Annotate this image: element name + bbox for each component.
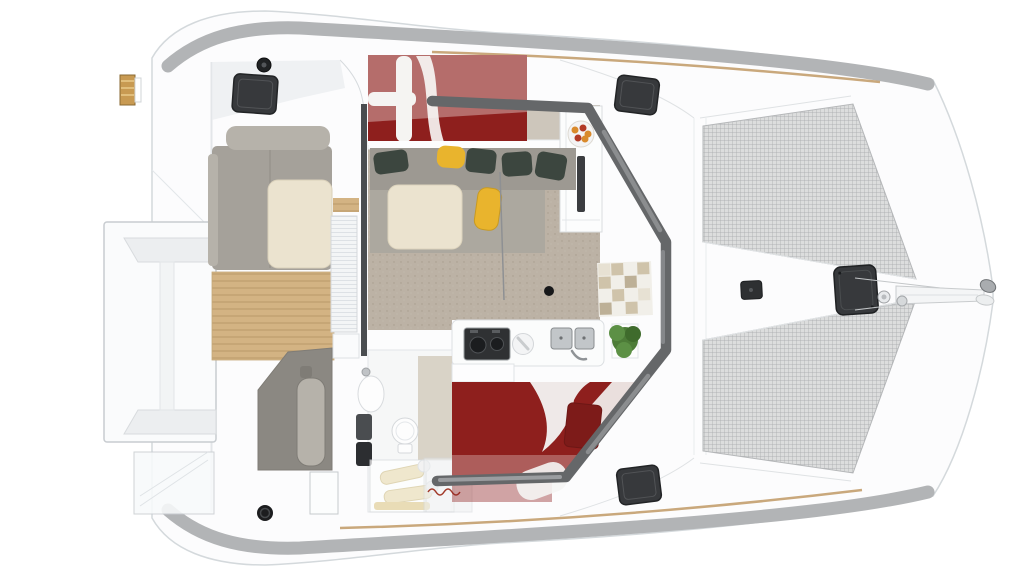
winch [257, 505, 273, 521]
sliding-door-louver [331, 216, 357, 332]
cushion-yellow [436, 145, 465, 169]
stove [464, 328, 510, 360]
side-hatch-bottom [616, 465, 662, 506]
platform-step-top [124, 238, 216, 262]
mixing-bowl [513, 334, 534, 355]
deck-fitting [257, 58, 271, 72]
bath-mat [374, 502, 430, 510]
stern-steps-glass [134, 452, 214, 514]
bed-cabinet [452, 364, 514, 382]
deck-ring [878, 291, 890, 303]
platform-step-bottom [124, 410, 216, 434]
coffee-table [388, 185, 462, 249]
cushion-green [465, 147, 497, 174]
door-step [333, 334, 359, 358]
cushion-green [373, 149, 410, 176]
cockpit-table [268, 180, 332, 268]
galley-counter [452, 320, 604, 366]
fruit-bowl [568, 121, 594, 147]
door-track [361, 104, 367, 356]
pillow-white-horizontal [368, 92, 416, 106]
entry-tiles [597, 261, 653, 317]
cushion-green [534, 151, 568, 182]
cabinet-handle [577, 156, 585, 212]
cockpit-hatch [232, 74, 279, 115]
bathroom-tile [418, 356, 452, 460]
potted-plant [609, 324, 641, 358]
catamaran-floorplan-render [0, 0, 1024, 576]
platform-column [160, 262, 174, 410]
teak-deck [212, 272, 334, 360]
cushion-green [501, 151, 533, 177]
side-hatch-top [614, 75, 660, 116]
mast-step [741, 280, 763, 299]
floor-socket [544, 286, 554, 296]
teak-strip [333, 198, 359, 212]
stern-locker [310, 472, 338, 514]
